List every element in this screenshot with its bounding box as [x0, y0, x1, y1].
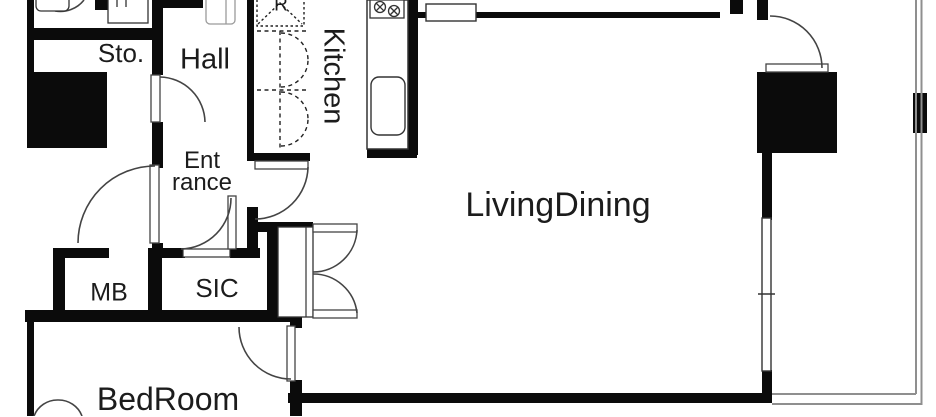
structural-pillar: [757, 72, 837, 153]
bedroom-door: [239, 326, 295, 381]
kitchen-window: [426, 4, 476, 21]
room-label-meter-box: MB: [90, 281, 128, 306]
cabinet-door-arc: [281, 92, 308, 119]
room-label-storage: Sto.: [98, 40, 144, 66]
hall-door: [151, 75, 205, 122]
bathroom-fixtures: [36, 0, 235, 24]
room-label-bedroom: BedRoom: [97, 383, 239, 415]
kitchen-fixtures: [367, 0, 408, 149]
balcony-door: [766, 16, 828, 72]
hall-cabinet: [206, 0, 235, 24]
room-label-hall: Hall: [180, 46, 230, 75]
dashed-cabinets: [257, 0, 308, 148]
room-label-living-dining: LivingDining: [465, 188, 650, 222]
room-label-refrigerator: R: [274, 0, 288, 15]
floor-plan-page: { "floor_plan": { "rooms": [ {"name": "s…: [0, 0, 936, 416]
cabinet-door-arc: [281, 119, 308, 146]
washbasin-icon: [108, 0, 148, 23]
cabinet-door-arc: [281, 33, 308, 60]
sic-door: [181, 196, 236, 249]
stove-burners-icon: [370, 0, 404, 18]
closet-double-doors: [278, 224, 357, 318]
room-label-entrance: Ent rance: [172, 150, 232, 194]
toilet-icon: [36, 0, 69, 11]
living-dining-door: [255, 161, 308, 219]
duct-shaft-block: [28, 72, 107, 148]
sic-threshold: [183, 249, 230, 257]
room-label-shoe-closet: SIC: [195, 275, 238, 301]
room-label-kitchen: Kitchen: [319, 28, 348, 125]
entrance-label-line2: rance: [172, 172, 232, 194]
kitchen-sink-icon: [371, 77, 405, 135]
balcony-railing: [772, 0, 922, 405]
bedroom-closet-doors: [34, 400, 82, 416]
front-door: [78, 165, 159, 243]
cabinet-door-arc: [281, 60, 308, 87]
